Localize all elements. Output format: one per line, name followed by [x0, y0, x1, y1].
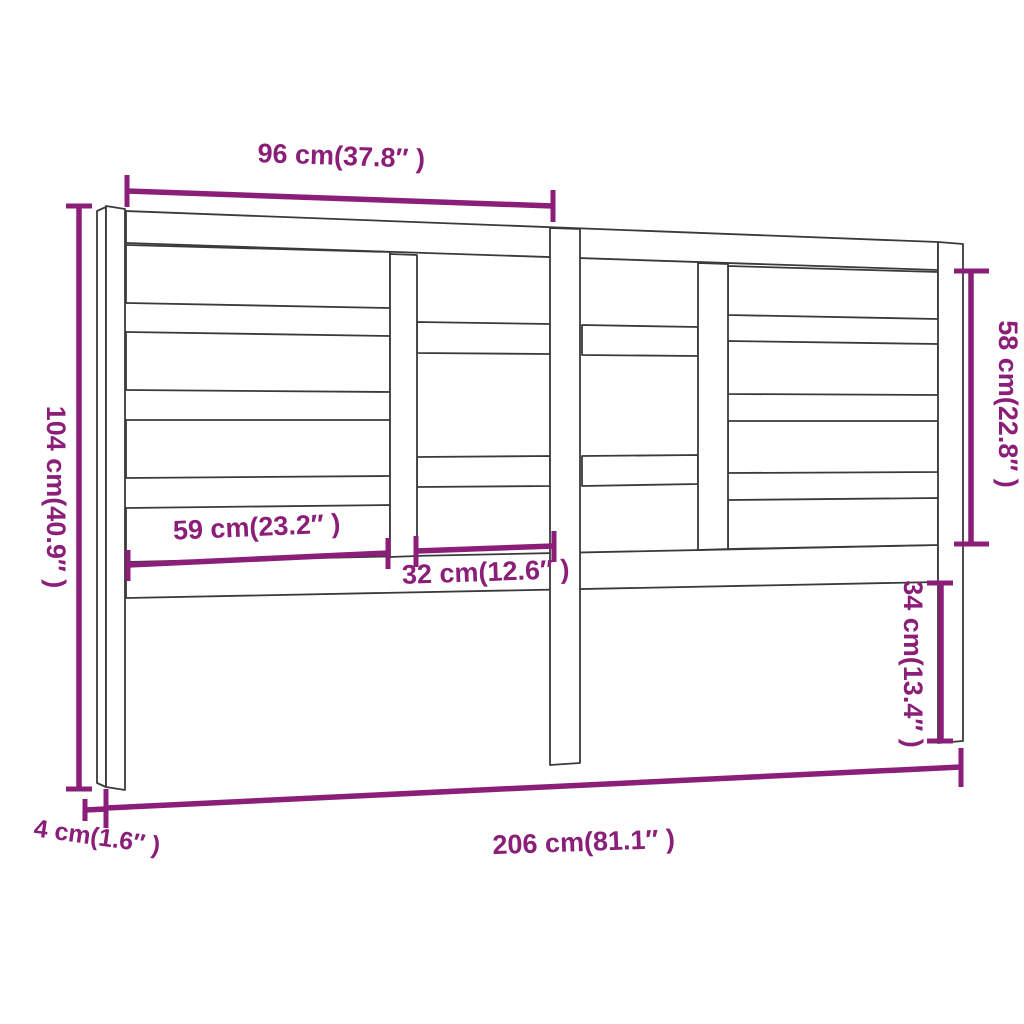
- left-panel-slat: [126, 245, 390, 308]
- mid-right-stile: [698, 263, 728, 550]
- dimension-line-post-thickness: [85, 809, 106, 810]
- right-panel-slat: [728, 421, 938, 473]
- mid-left-panel-slat: [417, 322, 550, 354]
- dimension-label-left-height: 104 cm(40.9″ ): [41, 406, 71, 589]
- mid-left-stile: [390, 254, 417, 557]
- left-post-side-face: [97, 207, 106, 787]
- headboard-dimension-diagram: 96 cm(37.8″ ) 104 cm(40.9″ ) 58 cm(22.8″…: [0, 0, 1024, 1024]
- right-panel-slat: [728, 498, 938, 549]
- dimension-label-center-panel: 32 cm(12.6″ ): [401, 554, 569, 590]
- dimension-line-center-panel: [416, 546, 554, 551]
- dimension-label-top-width: 96 cm(37.8″ ): [257, 138, 425, 174]
- center-post: [550, 228, 580, 765]
- mid-right-panel-slat: [582, 325, 698, 356]
- dimension-label-bottom-width: 206 cm(81.1″ ): [492, 824, 675, 860]
- left-panel-slat: [126, 332, 390, 392]
- left-panel-slat: [126, 420, 390, 478]
- dimension-line-top-width: [127, 191, 553, 206]
- dimension-label-post-thickness: 4 cm(1.6″ ): [32, 814, 162, 859]
- headboard-structure: [97, 206, 963, 790]
- dimension-line-bottom-width: [106, 767, 961, 808]
- diagram-svg: 96 cm(37.8″ ) 104 cm(40.9″ ) 58 cm(22.8″…: [0, 0, 1024, 1024]
- right-panel-slat: [728, 341, 938, 395]
- dimension-label-right-upper: 58 cm(22.8″ ): [993, 320, 1023, 488]
- left-post: [106, 206, 125, 790]
- mid-right-panel-slat: [582, 455, 698, 486]
- dimension-label-right-lower: 34 cm(13.4″ ): [898, 580, 928, 748]
- right-panel-slat: [728, 266, 938, 319]
- mid-left-panel-slat: [417, 456, 550, 487]
